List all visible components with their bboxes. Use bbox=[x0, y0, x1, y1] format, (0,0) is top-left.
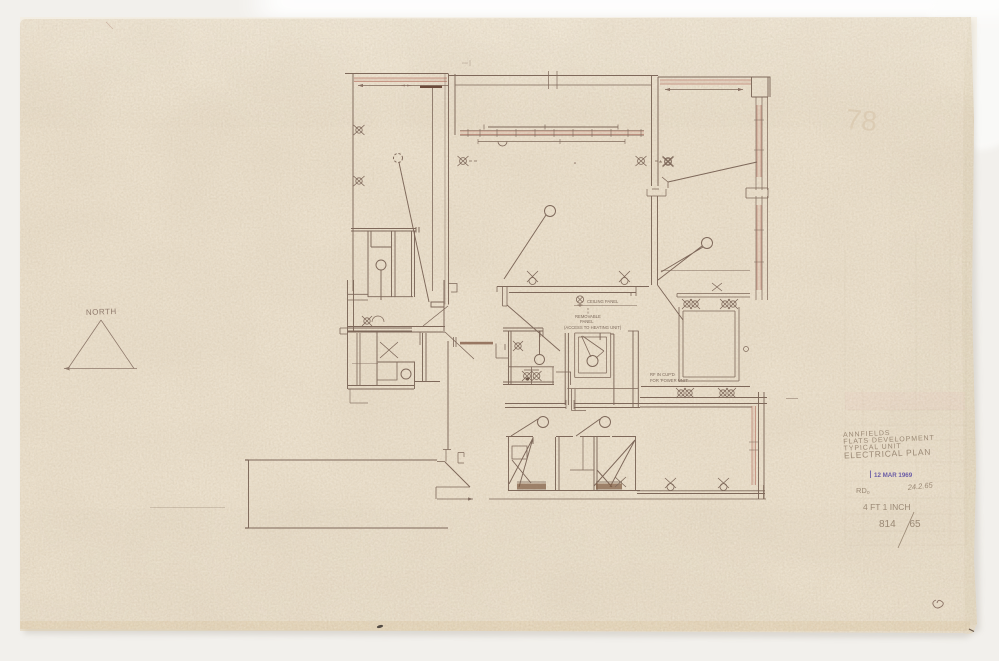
svg-text:(ACCESS TO HEATING UNIT): (ACCESS TO HEATING UNIT) bbox=[564, 325, 622, 330]
svg-text:78: 78 bbox=[844, 103, 878, 137]
svg-text:NORTH: NORTH bbox=[86, 307, 117, 317]
svg-text:FOR 'POWER UNIT': FOR 'POWER UNIT' bbox=[650, 378, 689, 383]
svg-text:CEILING PANEL: CEILING PANEL bbox=[587, 299, 619, 304]
svg-text:12 MAR 1969: 12 MAR 1969 bbox=[874, 472, 913, 479]
svg-text:4 FT 1 INCH: 4 FT 1 INCH bbox=[863, 502, 911, 512]
svg-text:RF IN CUP'D: RF IN CUP'D bbox=[650, 372, 675, 377]
svg-text:PANEL: PANEL bbox=[580, 319, 594, 324]
